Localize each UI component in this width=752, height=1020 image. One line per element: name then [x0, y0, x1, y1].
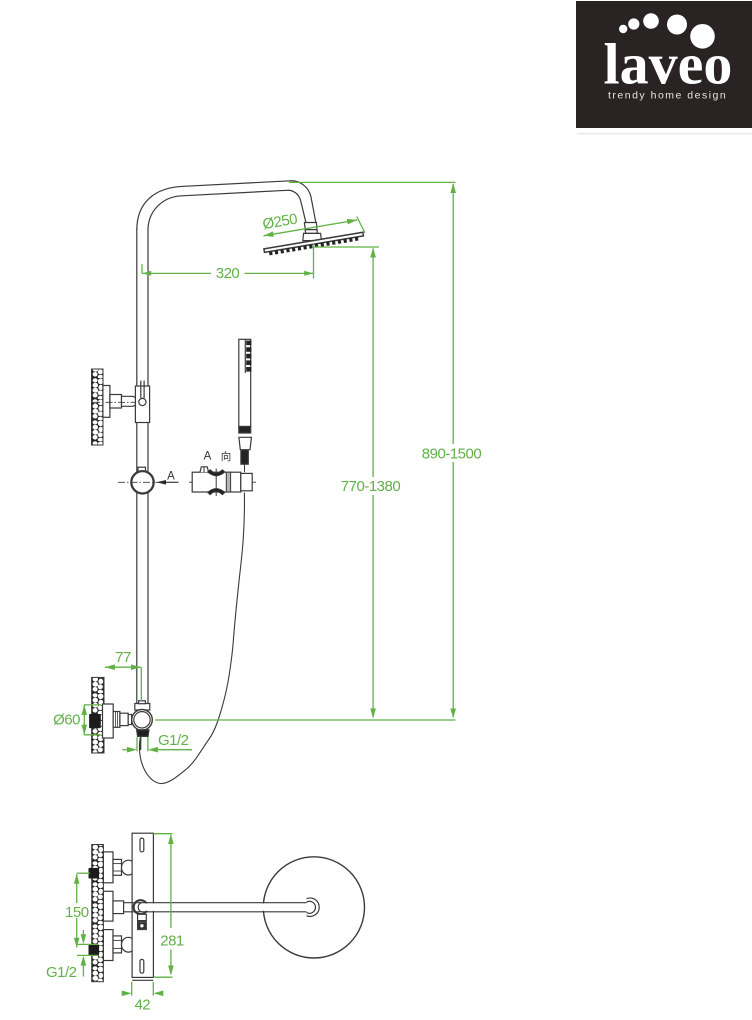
svg-text:281: 281	[160, 933, 184, 950]
svg-text:Ø250: Ø250	[261, 211, 298, 234]
svg-text:G1/2: G1/2	[158, 732, 189, 749]
svg-text:向: 向	[221, 450, 232, 463]
svg-text:770-1380: 770-1380	[341, 478, 401, 495]
svg-text:77: 77	[115, 649, 131, 666]
svg-text:890-1500: 890-1500	[422, 446, 482, 463]
svg-text:Ø60: Ø60	[53, 712, 80, 729]
svg-text:42: 42	[134, 997, 150, 1014]
svg-text:320: 320	[216, 265, 240, 282]
svg-text:150: 150	[65, 904, 89, 921]
svg-text:A: A	[204, 451, 212, 463]
svg-text:trendy home design: trendy home design	[608, 90, 727, 102]
svg-text:laveo: laveo	[604, 32, 733, 97]
svg-text:A: A	[167, 471, 175, 483]
svg-text:G1/2: G1/2	[46, 964, 77, 981]
